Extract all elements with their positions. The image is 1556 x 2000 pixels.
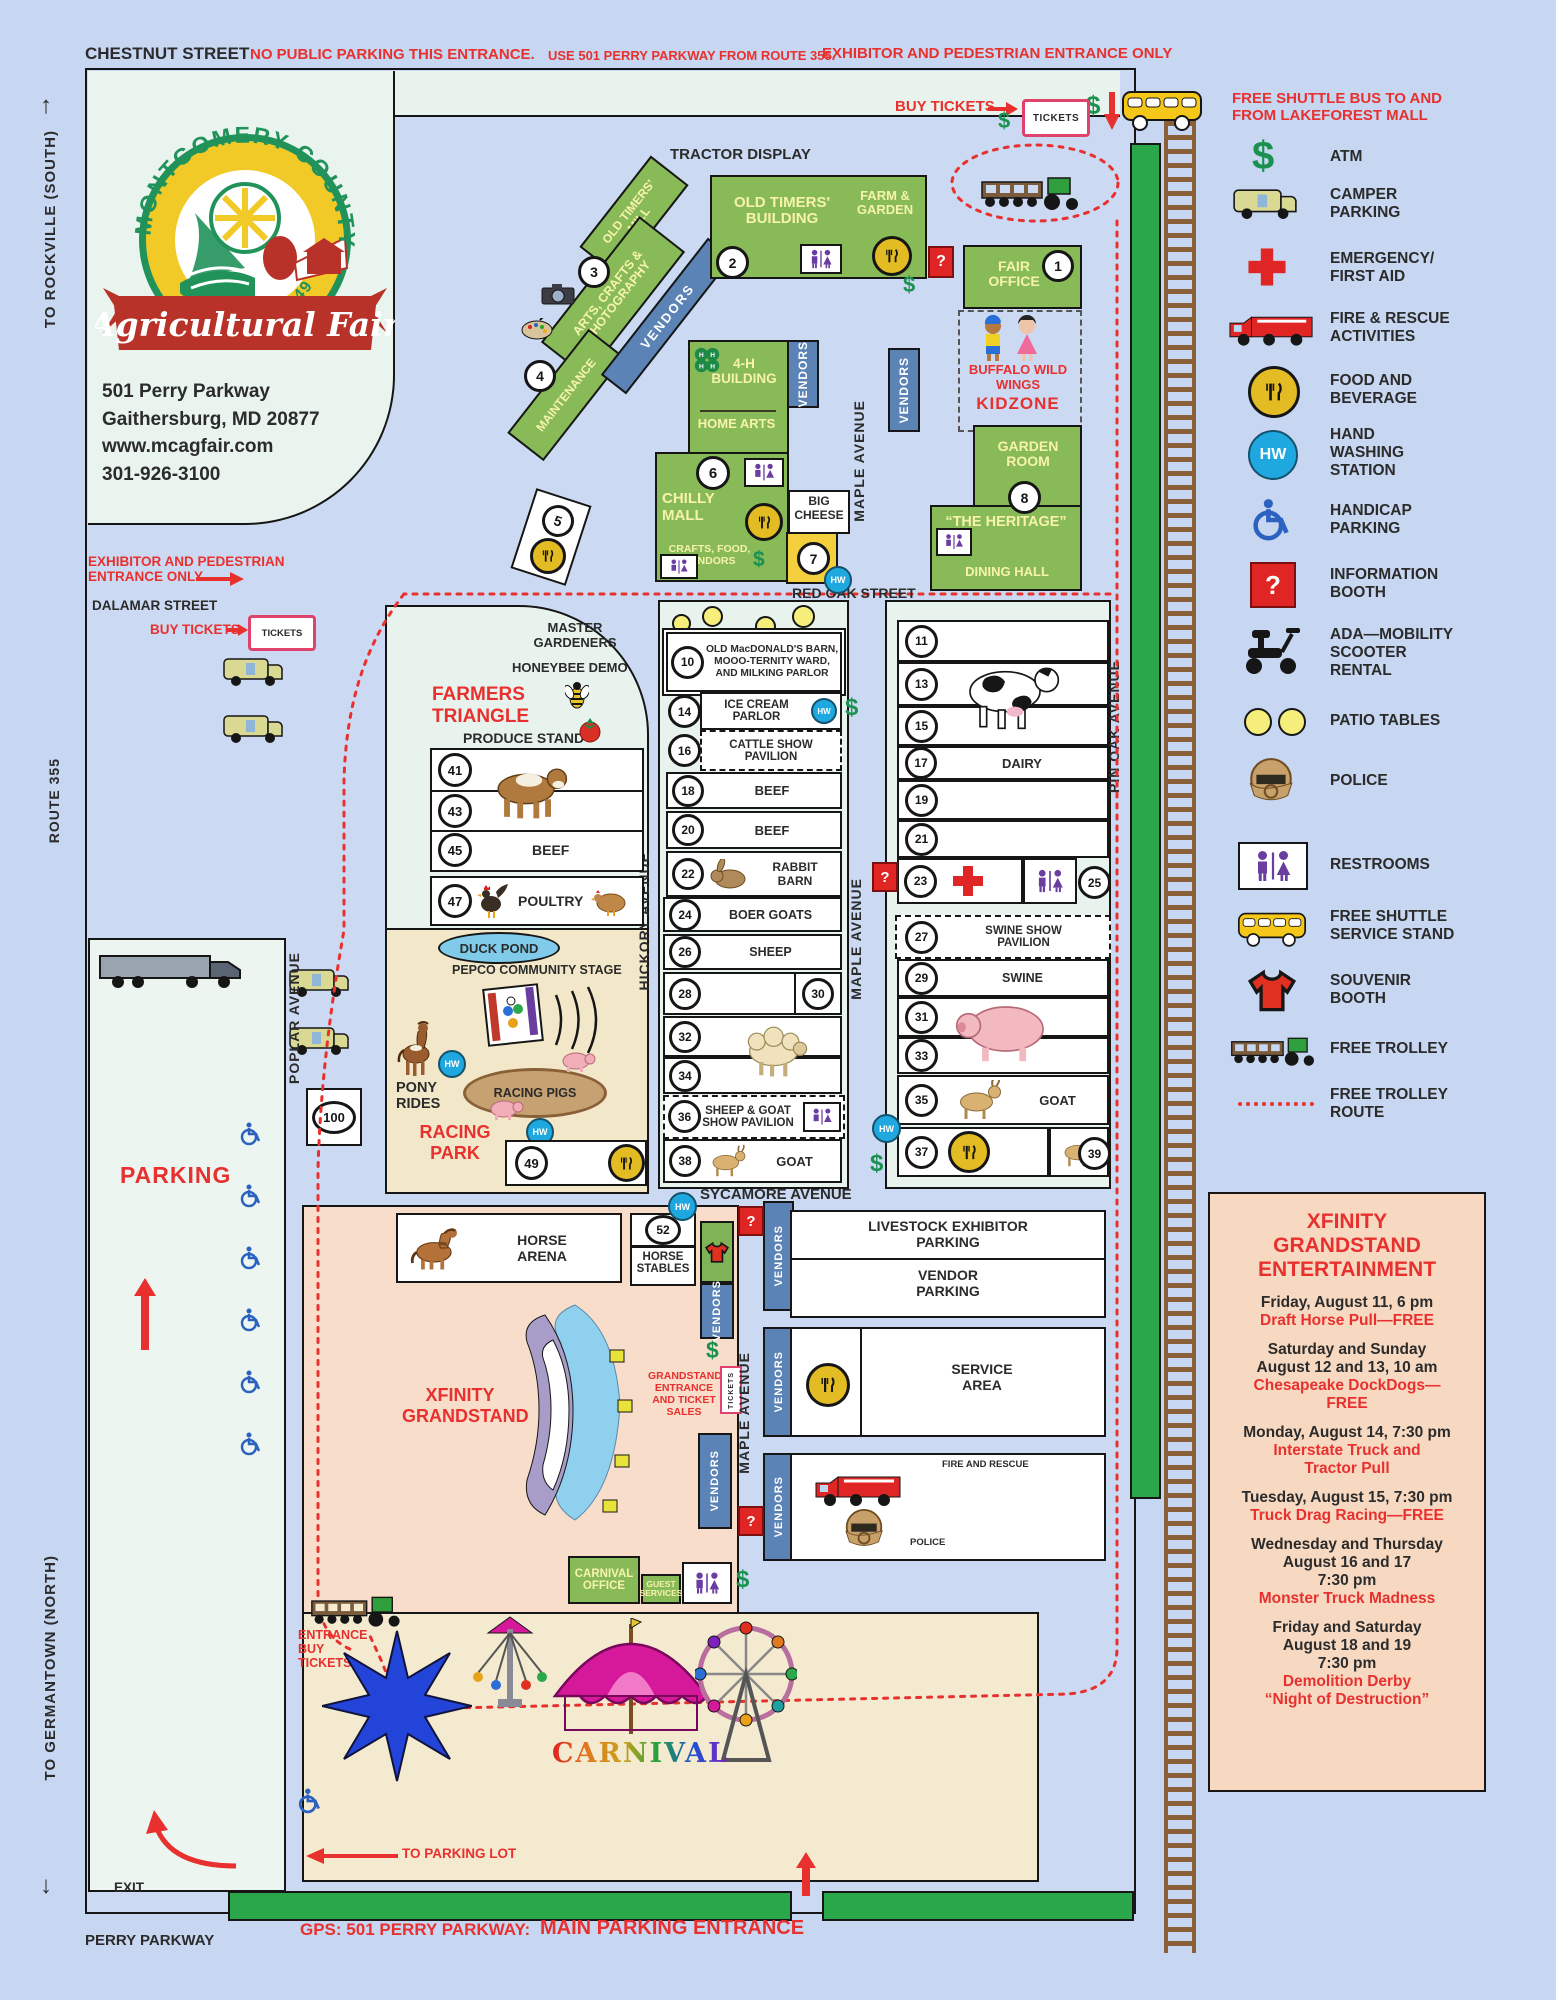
barn-29-number: 29 (905, 962, 938, 995)
legend-label: POLICE (1330, 772, 1388, 790)
barn-row-28-30: 28 30 (663, 972, 842, 1015)
barn-32-number: 32 (669, 1021, 701, 1053)
event-when: Tuesday, August 15, 7:30 pm (1218, 1489, 1476, 1507)
legend-label: CAMPER PARKING (1330, 186, 1400, 222)
hand-wash-icon: HW (668, 1192, 697, 1221)
scooter-icon (1240, 622, 1302, 676)
patio-table-icon (792, 605, 815, 628)
barn-31-number: 31 (905, 1001, 938, 1034)
camera-icon (540, 282, 576, 306)
legend-label: FIRE & RESCUE ACTIVITIES (1330, 310, 1450, 346)
right-arrow-icon (196, 572, 244, 586)
racing-park-label: RACING PARK (410, 1122, 500, 1164)
fire-rescue-label: FIRE AND RESCUE (942, 1459, 1029, 1470)
event-when: Friday and Saturday August 18 and 19 7:3… (1218, 1619, 1476, 1673)
legend-label: FREE TROLLEY ROUTE (1330, 1086, 1448, 1122)
horse-arena: HORSE ARENA (396, 1213, 622, 1283)
handicap-icon (240, 1432, 262, 1456)
legend-label: FREE SHUTTLE SERVICE STAND (1330, 908, 1454, 944)
sound-waves-icon (552, 985, 614, 1055)
grandstand-entrance-label: GRANDSTAND ENTRANCE AND TICKET SALES (648, 1370, 720, 1418)
building-7-number: 7 (797, 542, 830, 575)
honeybee-demo-label: HONEYBEE DEMO (512, 660, 628, 675)
ticket-booth-label: TICKETS (728, 1372, 735, 1409)
barn-14-label: ICE CREAM PARLOR (702, 699, 811, 723)
patio-table-icon (672, 614, 691, 633)
ticket-booth-icon: TICKETS (248, 615, 316, 651)
barn-36-number: 36 (668, 1100, 701, 1133)
barn-row-16: CATTLE SHOW PAVILION (700, 730, 842, 771)
barn-14-number: 14 (668, 695, 701, 728)
barn-26-label: SHEEP (701, 945, 840, 959)
xfinity-grandstand-label: XFINITY GRANDSTAND (402, 1385, 518, 1427)
holstein-cow-icon (955, 655, 1065, 730)
patio-table-icon (1278, 708, 1306, 736)
old-timers-label: OLD TIMERS' BUILDING (722, 195, 842, 227)
barn-row-22: 22 RABBIT BARN (666, 851, 842, 897)
barn-17-number: 17 (905, 747, 937, 779)
vendors-label: VENDORS (897, 357, 911, 423)
beef-cow-icon (485, 758, 573, 820)
barn-row-29: 29 SWINE (897, 959, 1109, 997)
hen-icon (591, 886, 631, 916)
legend-label: PATIO TABLES (1330, 712, 1440, 730)
atm-icon: $ (1252, 134, 1274, 179)
restroom-icon (1023, 858, 1077, 904)
trolley-icon (980, 176, 1085, 212)
patio-table-icon (1244, 708, 1272, 736)
barn-33-number: 33 (905, 1039, 938, 1072)
gps-label: GPS: 501 PERRY PARKWAY: (300, 1920, 530, 1940)
barn-38-label: GOAT (749, 1154, 840, 1169)
hand-wash-icon: HW (824, 566, 852, 594)
dining-hall-label: DINING HALL (962, 565, 1052, 579)
event-what: Interstate Truck and Tractor Pull (1218, 1442, 1476, 1478)
north-arrow-icon: ↑ (40, 92, 52, 120)
police-badge-icon (844, 1507, 884, 1551)
legend-label: ATM (1330, 148, 1362, 166)
horse-icon (406, 1226, 464, 1270)
barn-18-label: BEEF (704, 783, 840, 798)
rabbit-icon (708, 859, 750, 889)
legend-label: HANDICAP PARKING (1330, 502, 1412, 538)
atm-icon: $ (753, 548, 765, 572)
barn-row-19: 19 (897, 780, 1109, 820)
event-what: Truck Drag Racing—FREE (1218, 1507, 1476, 1525)
barn-10-number: 10 (671, 646, 704, 679)
barn-row-14: ICE CREAM PARLOR HW (700, 692, 842, 730)
big-cheese-stand: BIG CHEESE (788, 490, 850, 534)
no-parking-warning: NO PUBLIC PARKING THIS ENTRANCE. (250, 46, 535, 63)
barn-30-number: 30 (802, 978, 834, 1010)
food-icon (608, 1144, 645, 1182)
atm-icon: $ (870, 1150, 883, 1178)
hand-wash-icon: HW (438, 1050, 466, 1078)
barn-row-35: 35 GOAT (897, 1075, 1109, 1125)
racing-pigs-track: RACING PIGS (463, 1068, 607, 1118)
garden-room-label: GARDEN ROOM (989, 439, 1067, 469)
food-icon (806, 1363, 850, 1407)
event-what: Draft Horse Pull—FREE (1218, 1312, 1476, 1330)
street-label-poplar: POPLAR AVENUE (286, 952, 302, 1084)
vendors-label: VENDORS (711, 1280, 723, 1341)
fire-truck-icon (1228, 306, 1316, 350)
fair-logo: MONTGOMERY COUNTY FOUNDED 1949 Agricultu… (95, 118, 395, 380)
restroom-icon (800, 244, 842, 274)
duck-pond-label: DUCK POND (460, 941, 539, 956)
barn-26-number: 26 (669, 936, 701, 968)
grandstand-icon (515, 1295, 650, 1540)
barn-45-number: 45 (438, 833, 472, 867)
barn-29-label: SWINE (938, 971, 1107, 985)
first-aid-icon (1246, 246, 1288, 288)
barn-47-number: 47 (438, 884, 472, 918)
legend-label: FREE TROLLEY (1330, 1040, 1448, 1058)
trolley-icon (1230, 1036, 1320, 1068)
legend-label: SOUVENIR BOOTH (1330, 972, 1411, 1008)
restroom-icon (1238, 842, 1308, 890)
divider (700, 410, 776, 412)
pony-icon (396, 1020, 436, 1078)
address-line1: 501 Perry Parkway (102, 378, 320, 406)
barn-15-number: 15 (905, 710, 938, 743)
barn-row-24: 24 BOER GOATS (663, 897, 842, 932)
barn-45-label: BEEF (532, 842, 569, 858)
service-area-block: SERVICE AREA (790, 1327, 1106, 1437)
ticket-booth-label: TICKETS (262, 628, 303, 639)
vendors-label: VENDORS (709, 1450, 721, 1511)
barn-37-number: 37 (905, 1136, 938, 1169)
pig-icon (558, 1050, 596, 1072)
entertainment-title: XFINITY GRANDSTAND ENTERTAINMENT (1218, 1210, 1476, 1282)
barn-20-label: BEEF (704, 823, 840, 838)
barn-row-21: 21 (897, 820, 1109, 858)
barn-22-label: RABBIT BARN (750, 860, 840, 888)
information-icon: ? (738, 1506, 764, 1536)
barn-34-number: 34 (669, 1060, 701, 1092)
barn-24-number: 24 (669, 899, 701, 931)
barn-41-number: 41 (438, 753, 472, 787)
to-germantown-label: TO GERMANTOWN (NORTH) (42, 1555, 59, 1780)
barn-36-label: SHEEP & GOAT SHOW PAVILION (693, 1105, 803, 1129)
barn-20-number: 20 (672, 814, 704, 846)
fire-truck-icon (814, 1467, 904, 1509)
right-arrow-icon (226, 624, 248, 636)
vendors-label: VENDORS (773, 1225, 785, 1286)
camper-icon (1232, 185, 1298, 221)
barn-25-number: 25 (1078, 866, 1111, 899)
barn-21-number: 21 (905, 823, 938, 856)
guest-services: GUEST SERVICES (641, 1574, 681, 1604)
food-icon (1248, 366, 1300, 418)
building-1-number: 1 (1042, 250, 1074, 282)
rooster-icon (476, 882, 510, 920)
route-355-label: ROUTE 355 (46, 758, 62, 843)
farmers-triangle-label: FARMERS TRIANGLE (432, 684, 529, 728)
camper-icon (222, 712, 284, 744)
barn-row-17: 17 DAIRY (897, 746, 1109, 780)
street-label-maple-top: MAPLE AVENUE (851, 400, 867, 522)
information-icon: ? (928, 246, 954, 278)
exhibitor-entrance-label: EXHIBITOR AND PEDESTRIAN ENTRANCE ONLY (88, 554, 285, 584)
camper-icon (222, 655, 284, 687)
restroom-icon (682, 1562, 732, 1604)
legend-label: ADA—MOBILITY SCOOTER RENTAL (1330, 626, 1453, 680)
handicap-icon (298, 1788, 322, 1814)
carnival-tent-icon (545, 1618, 717, 1740)
legend-label: HAND WASHING STATION (1330, 426, 1404, 480)
legend-label: FOOD AND BEVERAGE (1330, 372, 1417, 408)
fair-address: 501 Perry Parkway Gaithersburg, MD 20877… (102, 378, 320, 488)
main-entrance-label: MAIN PARKING ENTRANCE (540, 1917, 804, 1940)
pig-icon (486, 1098, 524, 1120)
ticket-booth-label: TICKETS (1033, 113, 1079, 124)
food-icon (530, 538, 566, 574)
stage-icon (478, 983, 548, 1051)
street-label-dalamar: DALAMAR STREET (92, 598, 217, 613)
street-label-chestnut: CHESTNUT STREET (85, 44, 249, 64)
hand-wash-icon: HW (872, 1114, 901, 1143)
street-label-red-oak: RED OAK STREET (792, 585, 916, 601)
barn-row-20: 20 BEEF (666, 811, 842, 849)
street-label-maple-mid: MAPLE AVENUE (848, 878, 864, 1000)
barn-47-label: POULTRY (518, 893, 583, 909)
service-area-label: SERVICE AREA (912, 1361, 1052, 1393)
building-8-number: 8 (1008, 481, 1041, 514)
parking-panel (88, 938, 286, 1892)
svg-text:H: H (699, 363, 704, 370)
carnival-label: CARNIVAL (552, 1738, 729, 1769)
handicap-icon (240, 1308, 262, 1332)
use-perry-warning: USE 501 PERRY PARKWAY FROM ROUTE 355. (548, 48, 835, 63)
sheep-icon (740, 1020, 812, 1080)
trolley-icon (310, 1594, 406, 1630)
barn-39-number: 39 (1078, 1137, 1111, 1170)
barn-28-number: 28 (669, 978, 701, 1010)
chilly-mall-label: CHILLY MALL (662, 490, 742, 524)
building-4-number: 4 (524, 360, 556, 392)
atm-icon: $ (845, 694, 858, 722)
barn-43-number: 43 (438, 794, 472, 828)
logo-script-text: Agricultural Fair (95, 305, 395, 344)
tomato-icon (575, 716, 605, 743)
kids-icon (975, 314, 1047, 362)
barn-row-27: 27 SWINE SHOW PAVILION (895, 915, 1111, 959)
event-when: Wednesday and Thursday August 16 and 17 … (1218, 1536, 1476, 1590)
vendors-label: VENDORS (773, 1476, 785, 1537)
buy-tickets-top-label: BUY TICKETS (895, 98, 995, 115)
ticket-booth-icon: TICKETS (1022, 99, 1090, 137)
barn-27-number: 27 (905, 921, 938, 954)
food-icon (948, 1131, 990, 1173)
barn-row-23: 23 (897, 858, 1023, 904)
entrance-star-icon (322, 1626, 472, 1786)
farm-garden-label: FARM & GARDEN (850, 189, 920, 217)
fire-police-block: FIRE AND RESCUE POLICE (790, 1453, 1106, 1561)
carnival-office: CARNIVAL OFFICE (568, 1556, 640, 1604)
honeybee-icon (565, 680, 589, 710)
trolley-route-icon (1238, 1102, 1314, 1106)
svg-text:H: H (699, 352, 704, 359)
median-strip (822, 1891, 1134, 1921)
barn-35-number: 35 (905, 1084, 938, 1117)
handicap-icon (240, 1122, 262, 1146)
food-icon (745, 503, 783, 541)
kidzone-label: KIDZONE (962, 394, 1074, 414)
event-when: Saturday and Sunday August 12 and 13, 10… (1218, 1341, 1476, 1377)
barn-19-number: 19 (905, 784, 938, 817)
event-what: Monster Truck Madness (1218, 1590, 1476, 1608)
duck-pond: DUCK POND (438, 932, 560, 964)
vendors-label: VENDORS (796, 341, 810, 407)
souvenir-tshirt-icon (705, 1240, 729, 1264)
exit-label: EXIT (114, 1880, 144, 1895)
barn-row-38: 38 GOAT (663, 1139, 842, 1183)
goat-icon (948, 1080, 1008, 1120)
entrance-arrow-icon (796, 1852, 816, 1896)
barn-16-label: CATTLE SHOW PAVILION (702, 739, 840, 763)
up-arrow-icon (134, 1278, 156, 1350)
barn-27-label: SWINE SHOW PAVILION (938, 925, 1109, 949)
building-6-number: 6 (696, 456, 730, 490)
barn-16-number: 16 (668, 734, 701, 767)
shuttle-note: FREE SHUTTLE BUS TO AND FROM LAKEFOREST … (1232, 90, 1442, 124)
swing-ride-icon (468, 1615, 553, 1727)
4h-label: 4-H BUILDING (706, 356, 782, 386)
barn-row-37: 37 (897, 1127, 1049, 1177)
barn-35-label: GOAT (1008, 1093, 1107, 1108)
barn-24-label: BOER GOATS (701, 908, 840, 922)
first-aid-icon (951, 864, 985, 898)
handicap-icon (240, 1370, 262, 1394)
building-3-number: 3 (578, 256, 610, 288)
hand-wash-icon: HW (1248, 430, 1298, 480)
barn-row-18: 18 BEEF (666, 772, 842, 809)
green-median-strip (1130, 143, 1161, 1499)
south-arrow-icon: ↓ (40, 1872, 52, 1900)
vendors-strip: VENDORS (787, 340, 819, 408)
vendors-strip: VENDORS (700, 1283, 734, 1339)
barn-17-label: DAIRY (937, 756, 1107, 771)
hand-wash-icon: HW (811, 698, 837, 724)
barn-18-number: 18 (672, 775, 704, 807)
restroom-icon (744, 458, 784, 487)
horse-stables-label: HORSE STABLES (630, 1246, 696, 1286)
fair-phone: 301-926-3100 (102, 461, 320, 489)
patio-table-icon (702, 606, 723, 627)
event-what: Demolition Derby “Night of Destruction” (1218, 1673, 1476, 1709)
street-label-perry: PERRY PARKWAY (85, 1932, 214, 1949)
fair-office-label: FAIR OFFICE (979, 259, 1049, 289)
vendor-parking: VENDOR PARKING (790, 1258, 1106, 1318)
souvenir-booth (700, 1221, 734, 1283)
school-bus-icon (1122, 86, 1202, 132)
barn-10-label: OLD MacDONALD'S BARN, MOOO-TERNITY WARD,… (706, 644, 838, 679)
stand-49-number: 49 (515, 1146, 548, 1180)
barn-block-47: 47 POULTRY (430, 876, 644, 926)
exit-arrow-icon (140, 1808, 240, 1874)
handicap-icon (240, 1184, 262, 1208)
stand-100-number: 100 (312, 1101, 356, 1134)
left-arrow-icon (306, 1848, 398, 1864)
police-icon (1248, 756, 1294, 806)
trailer-truck-icon (98, 950, 246, 990)
barn-22-number: 22 (672, 858, 704, 890)
produce-stand-label: PRODUCE STAND (463, 730, 584, 746)
restroom-icon (660, 554, 698, 579)
master-gardeners-label: MASTER GARDENERS (515, 620, 635, 650)
legend-label: EMERGENCY/ FIRST AID (1330, 250, 1434, 286)
to-rockville-label: TO ROCKVILLE (SOUTH) (42, 130, 59, 328)
entertainment-panel: XFINITY GRANDSTAND ENTERTAINMENT Friday,… (1208, 1192, 1486, 1792)
pony-rides-label: PONY RIDES (396, 1080, 440, 1112)
legend-label: RESTROOMS (1330, 856, 1430, 874)
handicap-icon (240, 1246, 262, 1270)
swine-icon (955, 995, 1060, 1063)
tractor-display-label: TRACTOR DISPLAY (670, 146, 811, 163)
event-when: Friday, August 11, 6 pm (1218, 1294, 1476, 1312)
event-what: Chesapeake DockDogs— FREE (1218, 1377, 1476, 1413)
address-line2: Gaithersburg, MD 20877 (102, 406, 320, 434)
information-icon: ? (1250, 562, 1296, 608)
atm-icon: $ (736, 1566, 749, 1594)
atm-icon: $ (706, 1337, 719, 1364)
event-when: Monday, August 14, 7:30 pm (1218, 1424, 1476, 1442)
legend-label: INFORMATION BOOTH (1330, 566, 1438, 602)
barn-13-number: 13 (905, 668, 938, 701)
fair-map: CHESTNUT STREET NO PUBLIC PARKING THIS E… (0, 0, 1556, 2000)
down-arrow-icon (1104, 92, 1120, 130)
stand-100: 100 (306, 1088, 362, 1146)
livestock-exhibitor-parking: LIVESTOCK EXHIBITOR PARKING (790, 1210, 1106, 1265)
barn-row-10: 10 OLD MacDONALD'S BARN, MOOO-TERNITY WA… (666, 632, 842, 692)
vendors-label: VENDORS (773, 1351, 785, 1412)
railroad-track (1164, 93, 1196, 1953)
building-2-number: 2 (716, 246, 749, 279)
atm-icon: $ (903, 272, 915, 298)
parking-label: PARKING (120, 1162, 231, 1189)
information-icon: ? (872, 862, 898, 892)
paint-palette-icon (520, 318, 554, 340)
police-label: POLICE (910, 1537, 945, 1548)
souvenir-tshirt-icon (1248, 968, 1296, 1012)
stand-49: 49 (505, 1140, 647, 1186)
handicap-icon (1252, 498, 1292, 542)
information-icon: ? (738, 1206, 764, 1236)
barn-11-number: 11 (905, 625, 938, 658)
vendors-strip: VENDORS (888, 348, 920, 432)
barn-23-number: 23 (904, 865, 937, 898)
atm-icon: $ (998, 108, 1010, 134)
shuttle-icon (1238, 908, 1306, 948)
goat-icon (705, 1144, 749, 1178)
home-arts-label: HOME ARTS (688, 416, 785, 431)
exhibitor-entrance-warning: EXHIBITOR AND PEDESTRIAN ENTRANCE ONLY (822, 45, 1172, 62)
restroom-icon (936, 528, 972, 556)
pepco-stage-label: PEPCO COMMUNITY STAGE (452, 963, 622, 977)
to-parking-lot-label: TO PARKING LOT (402, 1846, 516, 1861)
barn-38-number: 38 (669, 1145, 701, 1177)
street-label-maple-bottom: MAPLE AVENUE (736, 1352, 752, 1474)
horse-arena-label: HORSE ARENA (464, 1232, 620, 1264)
food-icon (872, 236, 912, 276)
barn-row-26: 26 SHEEP (663, 934, 842, 970)
restroom-icon (803, 1102, 841, 1132)
fair-website: www.mcagfair.com (102, 433, 320, 461)
vendors-strip: VENDORS (698, 1433, 732, 1529)
kidzone-sponsor-label: BUFFALO WILD WINGS (962, 362, 1074, 392)
